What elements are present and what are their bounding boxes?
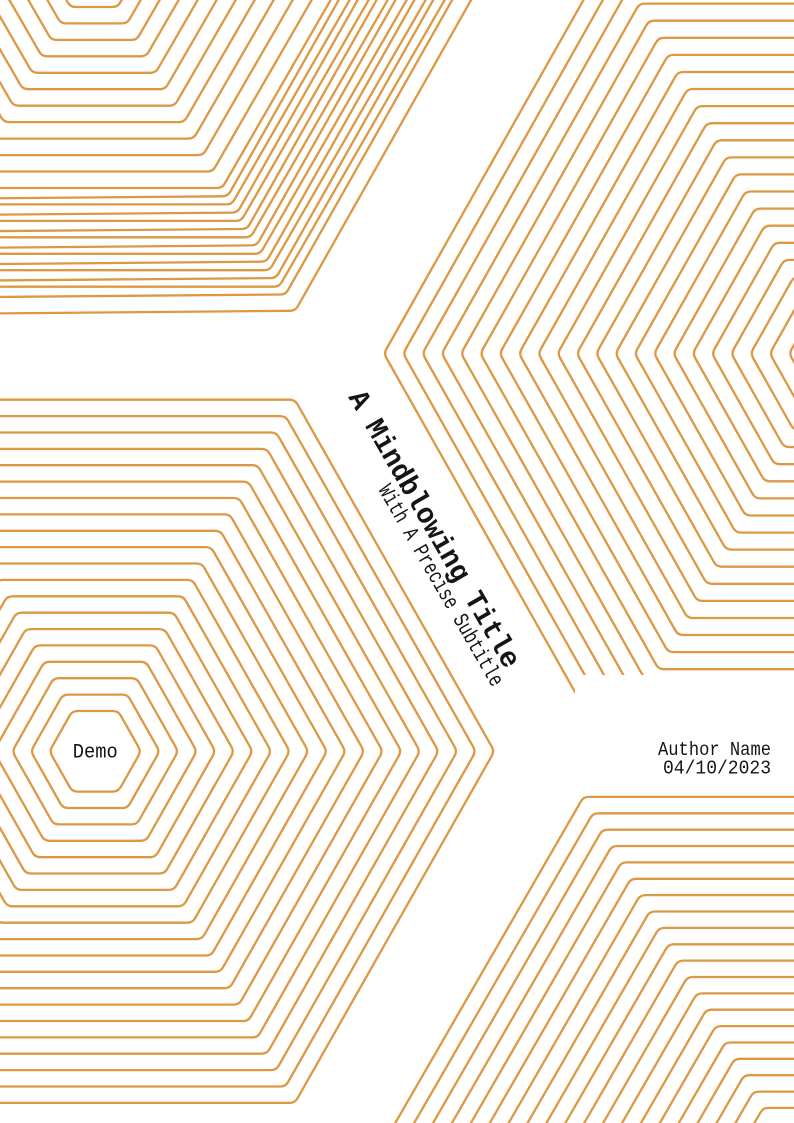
svg-text:04/10/2023: 04/10/2023 <box>663 758 771 780</box>
svg-text:Demo: Demo <box>73 741 118 764</box>
